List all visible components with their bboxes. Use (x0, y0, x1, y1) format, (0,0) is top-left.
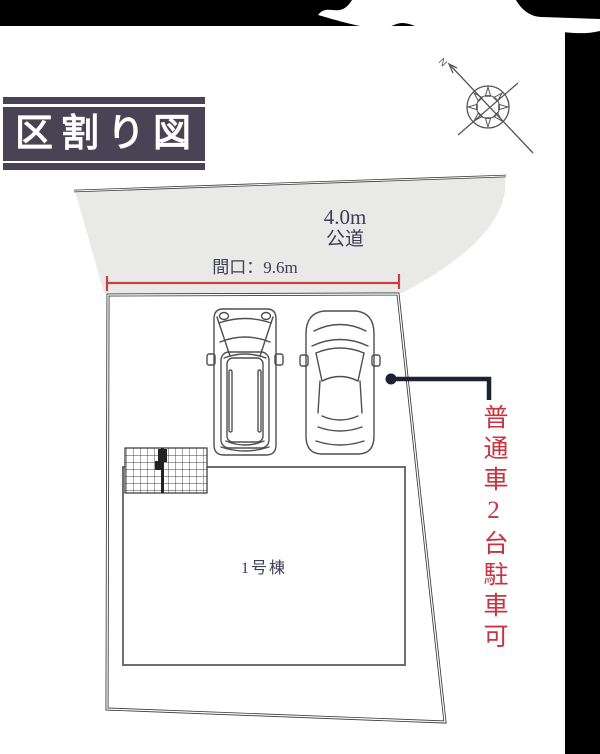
torn-paper-corner (318, 0, 600, 36)
title-rule-top (3, 104, 205, 107)
hatch-post-cap (158, 449, 167, 462)
frontage-label: 間口：9.6m (175, 258, 335, 278)
leader-dot (386, 374, 397, 385)
parking-note-label: 普通車2台駐車可 (480, 404, 506, 664)
page-frame: N 区割り図 4.0m 公道 間口：9.6m 1号棟 普通車2台駐車可 (0, 0, 600, 754)
title-plate: 区割り図 (3, 97, 205, 170)
entrance-hatch (125, 448, 207, 493)
north-arrow-line (450, 65, 533, 153)
hatch-post-flag (155, 461, 161, 470)
building-outline (123, 467, 405, 665)
north-label: N (436, 56, 449, 69)
page-title: 区割り図 (9, 115, 199, 153)
compass-icon: N (436, 56, 533, 153)
road-type-label: 公道 (295, 229, 395, 251)
road-width-label: 4.0m (295, 205, 395, 229)
title-rule-bottom (3, 161, 205, 164)
